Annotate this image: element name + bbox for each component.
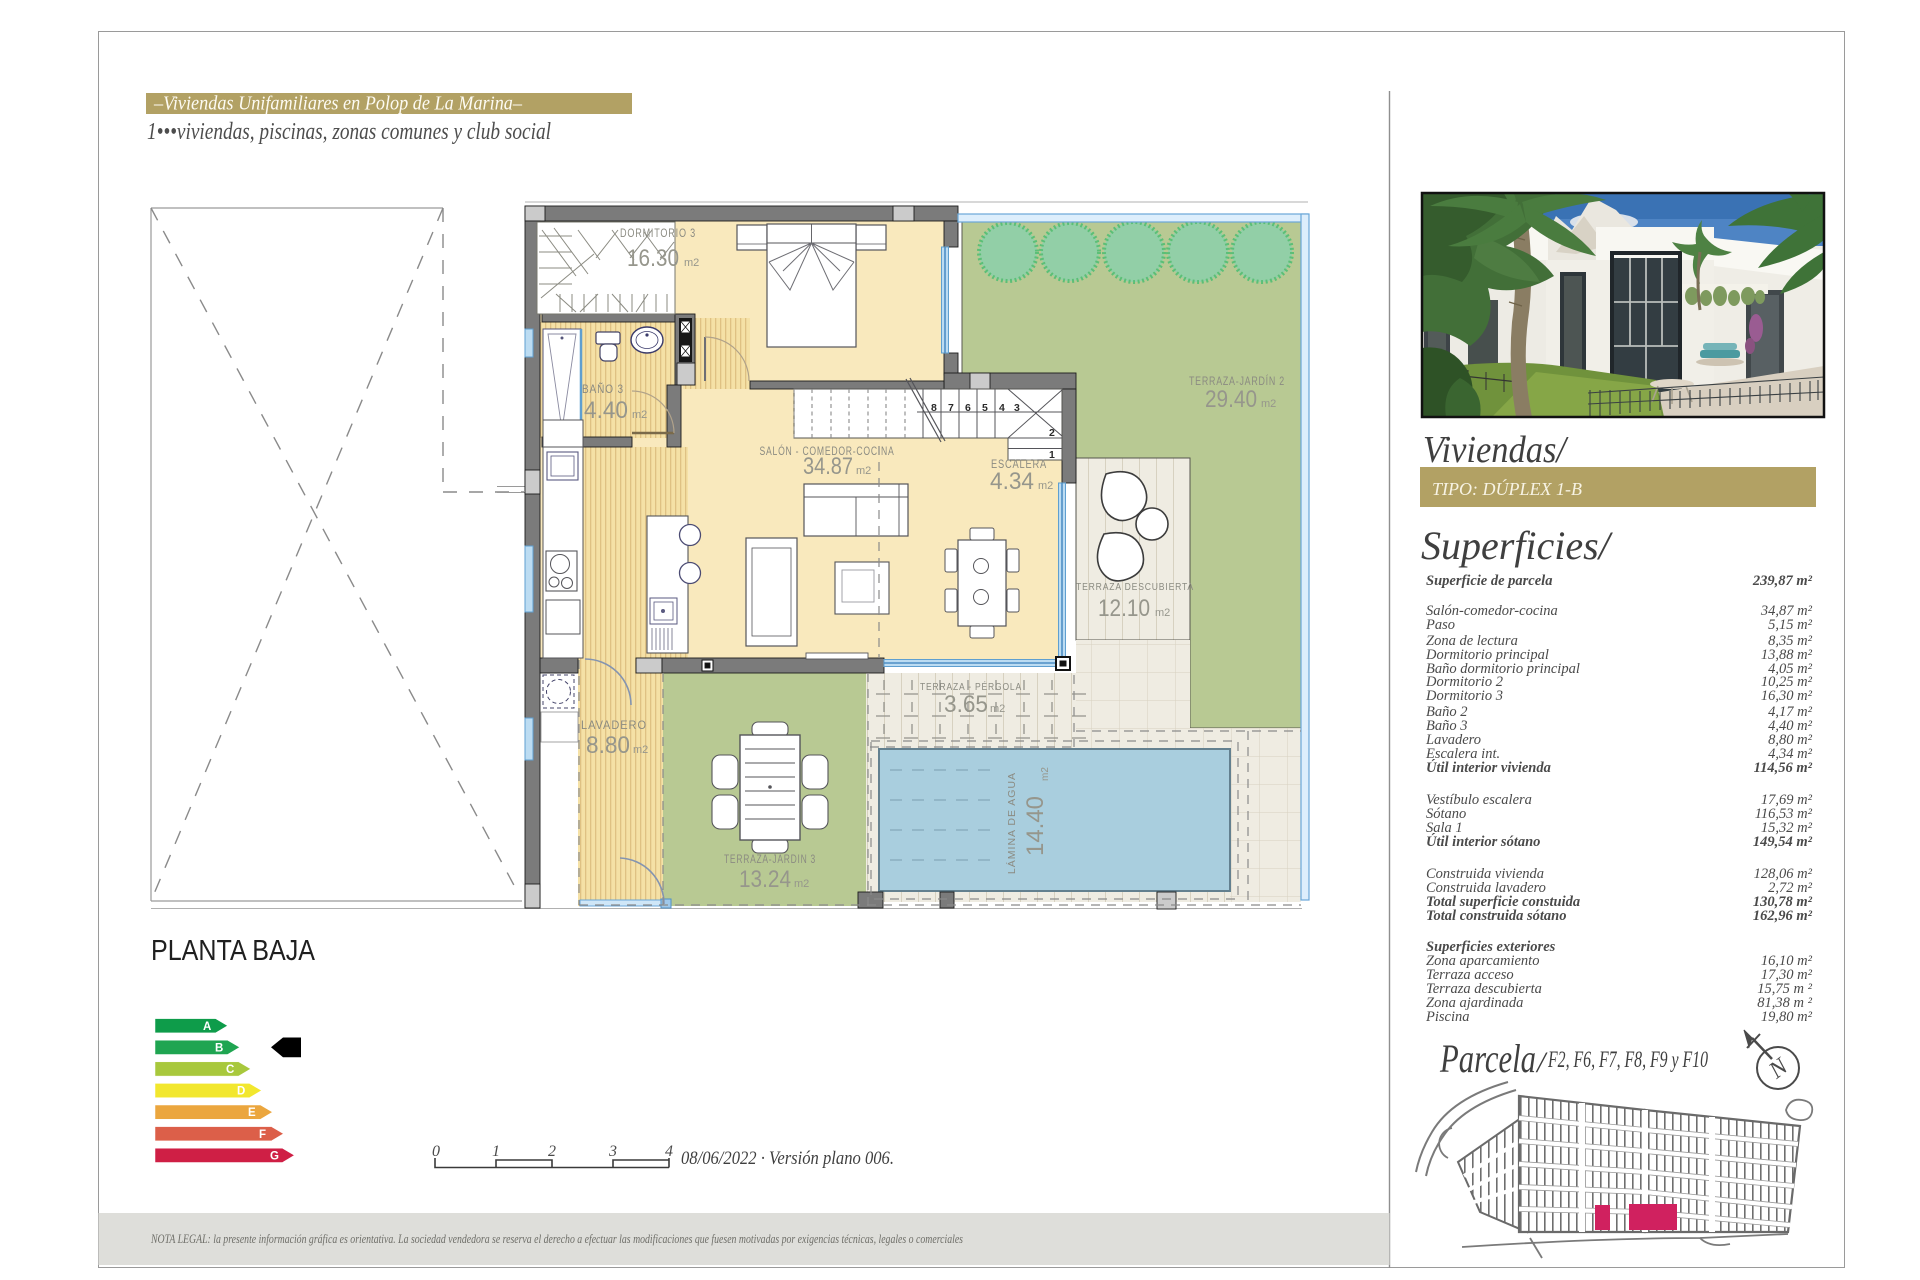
svg-text:TERRAZA-JARDIN 3: TERRAZA-JARDIN 3 [724,854,816,866]
svg-text:Útil interior vivienda: Útil interior vivienda [1426,759,1551,776]
svg-text:Útil interior sótano: Útil interior sótano [1426,833,1540,850]
svg-text:m2: m2 [856,465,871,477]
svg-text:F2, F6, F7, F8, F9 y F10: F2, F6, F7, F8, F9 y F10 [1547,1047,1708,1072]
svg-text:6: 6 [965,402,971,414]
svg-text:DORMITORIO 3: DORMITORIO 3 [620,228,696,240]
svg-text:5,15 m²: 5,15 m² [1768,617,1812,633]
svg-text:29.40: 29.40 [1205,386,1257,413]
svg-text:4.40: 4.40 [584,397,628,424]
svg-text:m2: m2 [990,703,1005,715]
svg-text:Parcela: Parcela [1439,1036,1536,1081]
svg-text:5: 5 [982,402,988,414]
svg-text:1•••viviendas, piscinas, zonas: 1•••viviendas, piscinas, zonas comunes y… [147,119,551,145]
svg-text:–Viviendas Unifamiliares en Po: –Viviendas Unifamiliares en Polop de La … [153,93,523,115]
svg-text:149,54 m²: 149,54 m² [1753,834,1813,850]
svg-text:34.87: 34.87 [803,453,853,480]
svg-text:7: 7 [948,402,954,414]
svg-text:14.40: 14.40 [1022,796,1049,856]
svg-text:Superficie de parcela: Superficie de parcela [1426,573,1552,589]
svg-text:239,87 m²: 239,87 m² [1752,573,1813,589]
svg-text:m2: m2 [633,744,648,756]
svg-text:E: E [248,1107,256,1119]
svg-text:08/06/2022 · Versión plano 006: 08/06/2022 · Versión plano 006. [681,1148,894,1169]
svg-text:4: 4 [665,1143,673,1160]
svg-text:PLANTA BAJA: PLANTA BAJA [151,935,316,967]
svg-text:m2: m2 [1261,398,1276,410]
svg-text:16,30 m²: 16,30 m² [1761,688,1813,704]
svg-text:4.34: 4.34 [990,468,1034,495]
svg-text:1: 1 [1049,449,1055,461]
svg-text:3.65: 3.65 [944,691,988,718]
svg-text:3: 3 [608,1143,617,1160]
svg-text:TERRAZA DESCUBIERTA: TERRAZA DESCUBIERTA [1076,581,1194,593]
svg-text:LAVADERO: LAVADERO [581,720,647,732]
svg-text:0: 0 [432,1143,440,1160]
svg-text:F: F [259,1129,266,1141]
svg-text:m2: m2 [794,878,809,890]
svg-text:19,80 m²: 19,80 m² [1761,1009,1813,1025]
svg-text:A: A [203,1021,211,1033]
svg-text:NOTA LEGAL: la presente inform: NOTA LEGAL: la presente información gráf… [150,1231,963,1246]
svg-text:m2: m2 [1040,767,1051,781]
svg-text:13.24: 13.24 [739,866,791,893]
svg-text:m2: m2 [632,409,647,421]
svg-text:Viviendas/: Viviendas/ [1423,429,1569,471]
svg-text:m2: m2 [1155,607,1170,619]
svg-text:1: 1 [492,1143,500,1160]
svg-text:m2: m2 [684,257,699,269]
svg-text:Total construida sótano: Total construida sótano [1426,908,1566,924]
svg-text:B: B [215,1043,223,1055]
svg-text:Superficies/: Superficies/ [1421,523,1614,568]
svg-text:162,96 m²: 162,96 m² [1753,908,1813,924]
svg-text:2: 2 [548,1143,556,1160]
svg-text:114,56 m²: 114,56 m² [1754,760,1813,776]
svg-text:G: G [270,1150,279,1162]
svg-text:BAÑO 3: BAÑO 3 [582,383,624,396]
svg-text:LÁMINA DE AGUA: LÁMINA DE AGUA [1005,772,1018,874]
svg-text:4: 4 [999,402,1005,414]
svg-text:D: D [237,1086,245,1098]
svg-text:m2: m2 [1038,480,1053,492]
svg-text:TIPO: DÚPLEX 1-B: TIPO: DÚPLEX 1-B [1432,478,1582,499]
svg-text:Dormitorio 3: Dormitorio 3 [1425,688,1503,704]
svg-text:12.10: 12.10 [1098,595,1150,622]
svg-text:2: 2 [1049,427,1055,439]
svg-text:8.80: 8.80 [586,732,630,759]
svg-text:3: 3 [1014,402,1020,414]
svg-text:16.30: 16.30 [627,245,679,272]
svg-text:8: 8 [931,402,937,414]
svg-text:Piscina: Piscina [1425,1009,1470,1025]
svg-text:Paso: Paso [1425,617,1455,633]
svg-text:C: C [226,1064,234,1076]
